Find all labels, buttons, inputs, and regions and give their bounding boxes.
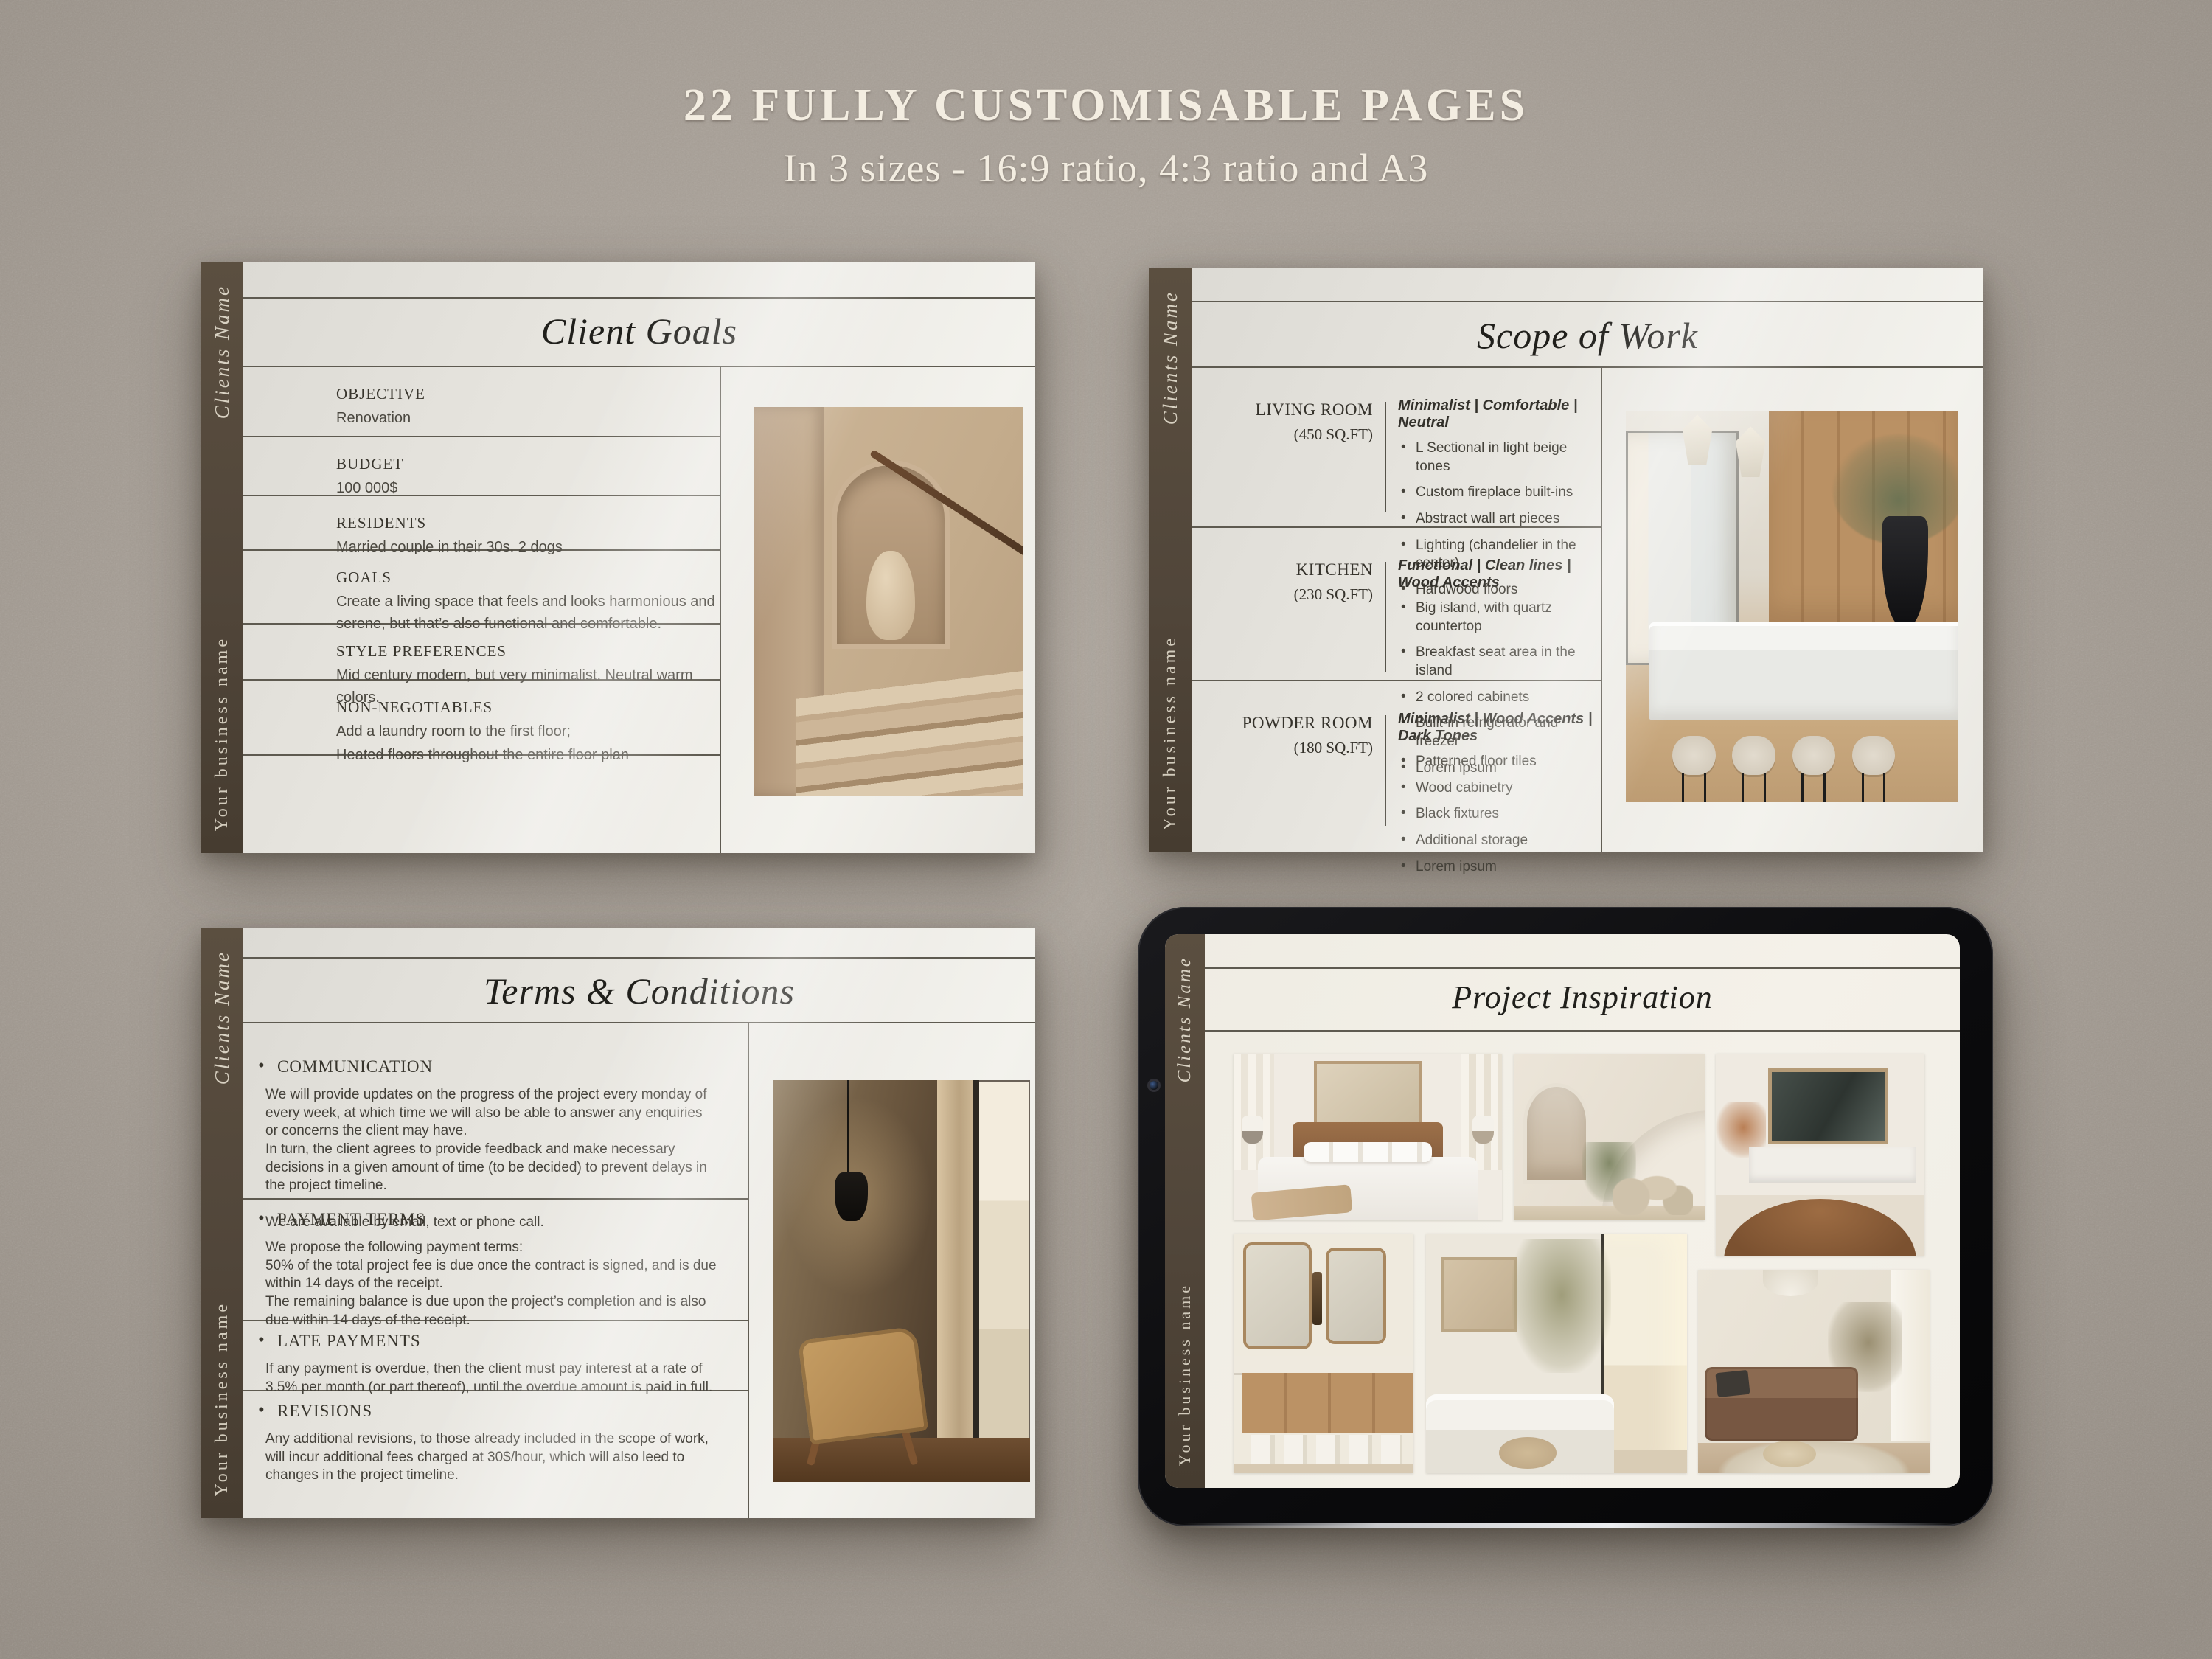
pillow-shape bbox=[1715, 1370, 1750, 1398]
room-bullet: 2 colored cabinets bbox=[1398, 689, 1601, 707]
goal-label: STYLE PREFERENCES bbox=[336, 642, 720, 661]
pendant-light-shape bbox=[1736, 426, 1766, 477]
goal-label: GOALS bbox=[336, 568, 720, 587]
floor-shape bbox=[1234, 1464, 1413, 1473]
room-rule bbox=[1385, 402, 1386, 512]
room-name: LIVING ROOM (450 SQ.FT) bbox=[1192, 397, 1373, 446]
pendant-lamp-shape bbox=[1763, 1270, 1818, 1296]
header-rule bbox=[1205, 1030, 1960, 1032]
coffee-table-shape bbox=[1763, 1441, 1816, 1467]
showcase-canvas: 22 FULLY CUSTOMISABLE PAGES In 3 sizes -… bbox=[0, 0, 2212, 1659]
lounge-chair-photo bbox=[773, 1080, 1030, 1482]
terms-paragraph: In turn, the client agrees to provide fe… bbox=[265, 1141, 717, 1195]
room-bullet: Additional storage bbox=[1398, 832, 1601, 850]
page-title: Project Inspiration bbox=[1205, 978, 1960, 1016]
business-name-label: Your business name bbox=[212, 1301, 232, 1496]
inspiration-sidebar: Clients Name Your business name bbox=[1165, 934, 1205, 1488]
room-name: POWDER ROOM (180 SQ.FT) bbox=[1192, 711, 1373, 759]
header-rule bbox=[243, 297, 1035, 299]
goal-label: OBJECTIVE bbox=[336, 385, 720, 403]
stool-shape bbox=[1792, 736, 1836, 775]
marble-island-shape bbox=[1649, 622, 1958, 720]
header-rule bbox=[1192, 366, 1983, 368]
header-rule bbox=[1192, 301, 1983, 302]
page-title: Scope of Work bbox=[1192, 314, 1983, 357]
vases-shape bbox=[1613, 1165, 1694, 1215]
showcase-header: 22 FULLY CUSTOMISABLE PAGES In 3 sizes -… bbox=[0, 80, 2212, 191]
client-goals-page: Clients Name Your business name Client G… bbox=[201, 262, 1035, 853]
wall-art-shape bbox=[1772, 1072, 1885, 1141]
goal-text: Heated floors throughout the entire floo… bbox=[336, 744, 720, 766]
inspiration-photo-staircase bbox=[1514, 1054, 1705, 1220]
business-name-label: Your business name bbox=[212, 636, 232, 831]
stool-shape bbox=[1672, 736, 1716, 775]
room-bullet: Wood cabinetry bbox=[1398, 779, 1601, 798]
sconce-shape bbox=[1312, 1272, 1321, 1325]
terms-section-revisions: REVISIONS Any additional revisions, to t… bbox=[243, 1402, 748, 1485]
content-divider-rule bbox=[1601, 366, 1602, 852]
terms-section-communication: COMMUNICATION We will provide updates on… bbox=[243, 1057, 748, 1232]
pendant-lamp-shape bbox=[835, 1172, 868, 1220]
vanity-shape bbox=[1242, 1373, 1413, 1433]
terms-heading: PAYMENT TERMS bbox=[277, 1210, 748, 1229]
kitchen-photo bbox=[1626, 411, 1958, 802]
room-name-text: POWDER ROOM bbox=[1192, 711, 1373, 737]
terms-paragraph: We propose the following payment terms: bbox=[265, 1239, 717, 1257]
terms-paragraph: Any additional revisions, to those alrea… bbox=[265, 1430, 717, 1485]
clients-name-label: Clients Name bbox=[1175, 956, 1195, 1082]
credenza-shape bbox=[1749, 1147, 1916, 1183]
tablet-camera bbox=[1150, 1081, 1158, 1090]
room-details: Minimalist | Wood Accents | Dark Tones P… bbox=[1398, 711, 1601, 876]
clients-name-label: Clients Name bbox=[211, 950, 234, 1085]
mirror-shape bbox=[1329, 1251, 1382, 1342]
scope-sidebar: Clients Name Your business name bbox=[1149, 268, 1192, 852]
room-name: KITCHEN (230 SQ.FT) bbox=[1192, 557, 1373, 606]
header-rule bbox=[243, 1022, 1035, 1023]
business-name-label: Your business name bbox=[1175, 1283, 1194, 1466]
showcase-subtitle: In 3 sizes - 16:9 ratio, 4:3 ratio and A… bbox=[0, 145, 2212, 191]
room-name-text: KITCHEN bbox=[1192, 557, 1373, 583]
room-name-text: LIVING ROOM bbox=[1192, 397, 1373, 423]
clients-name-label: Clients Name bbox=[211, 285, 234, 419]
inspiration-photo-brown-sofa bbox=[1698, 1270, 1930, 1473]
room-style-tags: Functional | Clean lines | Wood Accents bbox=[1398, 557, 1601, 591]
room-bullet: Breakfast seat area in the island bbox=[1398, 644, 1601, 680]
terms-heading: REVISIONS bbox=[277, 1402, 748, 1421]
header-rule bbox=[243, 957, 1035, 959]
goal-label: BUDGET bbox=[336, 455, 720, 473]
room-rule bbox=[1385, 562, 1386, 672]
client-goals-sidebar: Clients Name Your business name bbox=[201, 262, 243, 853]
goal-row-non-negotiables: NON-NEGOTIABLES Add a laundry room to th… bbox=[243, 679, 720, 766]
inspiration-photo-dining-room bbox=[1716, 1054, 1924, 1256]
woven-chair-shape bbox=[798, 1326, 928, 1444]
room-bullet: L Sectional in light beige tones bbox=[1398, 439, 1601, 476]
arch-doorway-shape bbox=[1527, 1087, 1586, 1180]
goal-label: RESIDENTS bbox=[336, 514, 720, 532]
coffee-table-shape bbox=[1499, 1437, 1557, 1468]
lamp-shape bbox=[1242, 1116, 1263, 1144]
inspiration-photo-bedroom bbox=[1234, 1054, 1502, 1220]
goal-text: Renovation bbox=[336, 407, 720, 429]
goal-label: NON-NEGOTIABLES bbox=[336, 698, 720, 717]
scope-of-work-page: Clients Name Your business name Scope of… bbox=[1149, 268, 1983, 852]
room-bullet: Big island, with quartz countertop bbox=[1398, 599, 1601, 636]
terms-paragraph: 50% of the total project fee is due once… bbox=[265, 1257, 717, 1293]
room-style-tags: Minimalist | Comfortable | Neutral bbox=[1398, 397, 1601, 431]
pillows-shape bbox=[1304, 1142, 1433, 1162]
content-divider-rule bbox=[748, 1022, 749, 1518]
showcase-title: 22 FULLY CUSTOMISABLE PAGES bbox=[0, 80, 2212, 132]
tablet-mockup: Clients Name Your business name Project … bbox=[1138, 907, 1993, 1526]
header-rule bbox=[1205, 967, 1960, 969]
window-shape bbox=[973, 1080, 1030, 1482]
stairway-photo bbox=[754, 407, 1023, 796]
page-title: Terms & Conditions bbox=[243, 970, 1035, 1012]
counter-shape bbox=[1234, 1356, 1413, 1373]
stool-shape bbox=[1732, 736, 1775, 775]
terms-section-late-payments: LATE PAYMENTS If any payment is overdue,… bbox=[243, 1332, 748, 1397]
curtain-shape bbox=[1234, 1054, 1274, 1170]
terms-paragraph: We will provide updates on the progress … bbox=[265, 1086, 717, 1141]
clients-name-label: Clients Name bbox=[1159, 291, 1182, 425]
room-bullet: Lorem ipsum bbox=[1398, 858, 1601, 877]
room-bullet: Black fixtures bbox=[1398, 805, 1601, 824]
room-size-text: (180 SQ.FT) bbox=[1192, 737, 1373, 760]
indoor-tree-shape bbox=[1512, 1239, 1612, 1373]
room-bullet: Patterned floor tiles bbox=[1398, 753, 1601, 771]
goal-row-goals: GOALS Create a living space that feels a… bbox=[243, 549, 720, 635]
room-rule bbox=[1385, 715, 1386, 826]
goal-row-budget: BUDGET 100 000$ bbox=[243, 436, 720, 499]
terms-heading: COMMUNICATION bbox=[277, 1057, 748, 1077]
page-title: Client Goals bbox=[243, 310, 1035, 352]
stairs-shape bbox=[796, 671, 1023, 796]
room-bullet: Abstract wall art pieces bbox=[1398, 510, 1601, 529]
room-style-tags: Minimalist | Wood Accents | Dark Tones bbox=[1398, 711, 1601, 745]
goal-row-objective: OBJECTIVE Renovation bbox=[243, 366, 720, 429]
terms-heading: LATE PAYMENTS bbox=[277, 1332, 748, 1351]
terms-sidebar: Clients Name Your business name bbox=[201, 928, 243, 1518]
room-size-text: (450 SQ.FT) bbox=[1192, 423, 1373, 447]
vase-shape bbox=[866, 551, 915, 640]
goal-text: Add a laundry room to the first floor; bbox=[336, 720, 720, 742]
stool-shape bbox=[1852, 736, 1896, 775]
content-divider-rule bbox=[720, 366, 721, 853]
curtain-shape bbox=[1461, 1054, 1502, 1170]
pendant-cord-shape bbox=[847, 1080, 849, 1177]
terms-paragraph: If any payment is overdue, then the clie… bbox=[265, 1360, 717, 1397]
lamp-shape bbox=[1472, 1116, 1494, 1144]
tablet-screen: Clients Name Your business name Project … bbox=[1165, 934, 1960, 1488]
terms-paragraph: The remaining balance is due upon the pr… bbox=[265, 1293, 717, 1329]
inspiration-photo-bathroom bbox=[1234, 1234, 1413, 1473]
room-size-text: (230 SQ.FT) bbox=[1192, 583, 1373, 607]
mirror-shape bbox=[1246, 1245, 1309, 1346]
terms-section-payment-terms: PAYMENT TERMS We propose the following p… bbox=[243, 1210, 748, 1329]
room-bullet: Custom fireplace built-ins bbox=[1398, 484, 1601, 502]
inspiration-photo-living-room bbox=[1426, 1234, 1687, 1473]
business-name-label: Your business name bbox=[1161, 636, 1180, 830]
terms-page: Clients Name Your business name Terms & … bbox=[201, 928, 1035, 1518]
wall-art-shape bbox=[1444, 1260, 1515, 1329]
towels-shape bbox=[1251, 1435, 1402, 1466]
wall-art-shape bbox=[1317, 1064, 1419, 1126]
